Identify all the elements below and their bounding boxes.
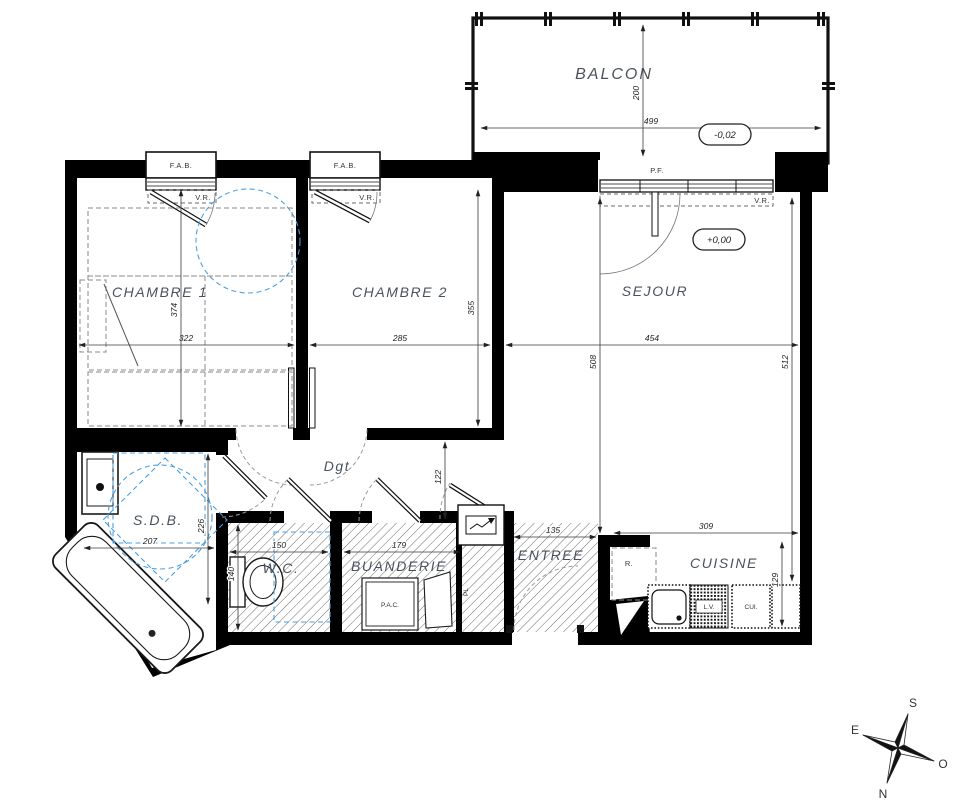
heat-pump-label: P.A.C. — [381, 602, 399, 609]
degagement-label: Dgt — [324, 458, 351, 474]
balcony-label: BALCON — [575, 66, 653, 83]
compass-north: N — [879, 787, 888, 800]
cooker-label: CUI. — [745, 604, 758, 611]
cuisine-label: CUISINE — [690, 555, 758, 571]
compass-east: E — [851, 723, 859, 737]
chambre2-width-dim: 285 — [392, 333, 407, 343]
chambre1-door-leaf — [289, 368, 295, 428]
chambre2-door-leaf — [310, 368, 316, 428]
chambre1-label: CHAMBRE 1 — [112, 284, 208, 300]
heat-pump: P.A.C. — [362, 578, 418, 630]
cuisine-width-dim: 309 — [699, 521, 713, 531]
french-door-label: P.F. — [650, 166, 664, 175]
electrical-panel — [458, 505, 504, 545]
wc-depth-dim: 140 — [226, 567, 236, 581]
sdb-label: S.D.B. — [133, 512, 183, 528]
chambre2-depth-dim: 355 — [466, 301, 476, 315]
sejour-shutter-label: V.R. — [754, 196, 770, 205]
chambre2-label: CHAMBRE 2 — [352, 284, 448, 300]
chambre1-depth-dim: 374 — [169, 303, 179, 317]
wc-width-dim: 150 — [272, 540, 286, 550]
buanderie-open-door — [424, 572, 452, 628]
floor-level-pill: +0,00 — [693, 229, 745, 250]
sejour-width-dim: 454 — [645, 333, 659, 343]
buanderie-label: BUANDERIE — [351, 558, 447, 574]
compass: S E O N — [851, 696, 948, 800]
buanderie-width-dim: 179 — [392, 540, 406, 550]
sdb-width-dim: 207 — [142, 536, 157, 546]
chambre2-floor — [308, 178, 492, 428]
floor-plan: BALCON 499 200 -0,02 — [0, 0, 978, 800]
sejour-depth-right-dim: 512 — [780, 355, 790, 369]
compass-west: O — [938, 757, 947, 771]
sejour-depth-left-dim: 508 — [588, 355, 598, 369]
entry-door-opening — [512, 632, 578, 645]
balcony-level: -0,02 — [714, 130, 736, 141]
degagement-dim: 122 — [433, 470, 443, 484]
balcony: BALCON 499 200 -0,02 — [465, 12, 835, 163]
balcony-depth-dim: 200 — [631, 86, 641, 101]
sdb-depth-dim: 226 — [196, 519, 206, 534]
compass-south: S — [909, 696, 917, 710]
counter-unit — [772, 585, 800, 628]
wc-label: W.C. — [263, 560, 300, 576]
window1-shutter-label: V.R. — [195, 193, 211, 202]
balcony-level-pill: -0,02 — [699, 124, 751, 145]
entree-width-dim: 135 — [546, 525, 560, 535]
cuisine-depth-dim: 129 — [770, 573, 780, 587]
degagement-floor — [228, 440, 504, 511]
entree-label: ENTREE — [518, 547, 584, 563]
dishwasher-label: L.V. — [704, 604, 715, 611]
window2-label: F.A.B. — [334, 161, 356, 170]
window2-shutter-label: V.R. — [359, 193, 375, 202]
sejour-label: SEJOUR — [622, 283, 688, 299]
floor-level: +0,00 — [707, 235, 732, 246]
balcony-width-dim: 499 — [644, 116, 658, 126]
entree-floor — [512, 523, 598, 632]
fridge-label: R. — [625, 559, 633, 568]
closet-label: PL — [463, 588, 470, 596]
window1-label: F.A.B. — [170, 161, 192, 170]
